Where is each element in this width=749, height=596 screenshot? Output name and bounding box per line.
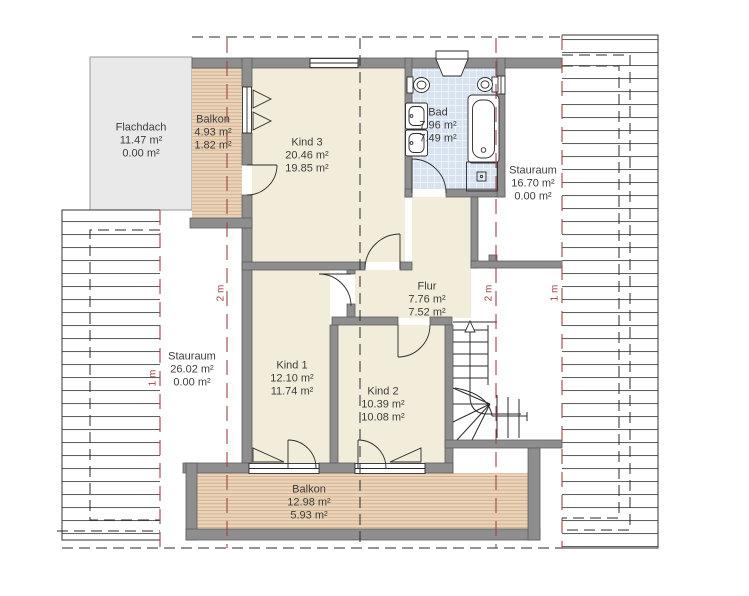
room-label-kind2: Kind 2 10.39 m² 10.08 m² [361,386,404,425]
room-area-floor: 10.39 m² [361,399,404,412]
wall-south-b [319,463,355,473]
room-area-floor: 7.96 m² [419,120,456,133]
room-area-floor: 11.47 m² [116,135,167,148]
room-label-balkon-top: Balkon 4.93 m² 1.82 m² [194,114,231,153]
left-roof-hatch [62,210,160,540]
room-area-living: 19.85 m² [285,163,328,176]
wall-stair-south [445,440,562,448]
room-name: Balkon [287,484,330,497]
room-area-floor: 7.76 m² [408,294,445,307]
bidet [407,77,430,93]
wall-kind3-south-a [242,262,365,270]
room-name: Stauraum [509,165,557,178]
room-area-living: 10.08 m² [361,412,404,425]
room-name: Flur [408,281,445,294]
balcony-parapet-south [186,529,540,540]
balcony-parapet-west [186,463,197,540]
room-label-bad: Bad 7.96 m² 7.49 m² [419,107,456,146]
room-name: Balkon [194,114,231,127]
room-name: Stauraum [168,351,216,364]
room-area-living: 7.49 m² [419,133,456,146]
room-area-living: 11.74 m² [270,386,313,399]
height-marker-2m-right: 2 m [484,285,495,302]
room-area-floor: 26.02 m² [168,364,216,377]
room-label-balkon-bottom: Balkon 12.98 m² 5.93 m² [287,484,330,523]
height-marker-1m-right: 1 m [550,285,561,302]
floor-plan: Flachdach 11.47 m² 0.00 m² Balkon 4.93 m… [0,0,749,596]
room-area-floor: 20.46 m² [285,150,328,163]
room-label-flur: Flur 7.76 m² 7.52 m² [408,281,445,320]
balcony-parapet-east [528,448,540,540]
toilet [478,77,499,92]
room-name: Bad [419,107,456,120]
wall-flur-east [471,197,478,268]
floor-plan-svg [0,0,749,596]
room-label-kind3: Kind 3 20.46 m² 19.85 m² [285,137,328,176]
room-area-living: 1.82 m² [194,140,231,153]
room-name: Kind 3 [285,137,328,150]
wall-kind2-north-a [332,317,398,325]
room-label-stauraum-left: Stauraum 26.02 m² 0.00 m² [168,351,216,390]
room-label-stauraum-right: Stauraum 16.70 m² 0.00 m² [509,165,557,204]
height-marker-1m-left: 1 m [148,370,159,387]
balcony-bottom-floor [197,473,529,529]
room-label-kind1: Kind 1 12.10 m² 11.74 m² [270,360,313,399]
wall-balcony-top-south [190,218,252,228]
room-area-floor: 4.93 m² [194,127,231,140]
wall-west-b [242,133,252,165]
room-label-flachdach: Flachdach 11.47 m² 0.00 m² [116,122,167,161]
wall-kind2-east [445,325,453,473]
room-name: Kind 1 [270,360,313,373]
room-area-living: 5.93 m² [287,510,330,523]
wall-kind1-kind2 [330,325,338,463]
wall-west-c [242,195,252,463]
room-area-living: 7.52 m² [408,307,445,320]
room-name: Kind 2 [361,386,404,399]
room-area-floor: 12.98 m² [287,497,330,510]
wall-west-a [242,58,252,87]
height-marker-2m-left: 2 m [216,285,227,302]
wall-south-c [425,463,453,473]
wall-bath-east-a [497,58,505,76]
wall-bath-south-a [405,189,412,197]
wall-kind1-east-a [347,270,355,274]
room-area-living: 0.00 m² [116,148,167,161]
room-area-floor: 16.70 m² [509,178,557,191]
room-area-living: 0.00 m² [509,191,557,204]
wall-stauraum-right-south [471,261,562,268]
right-roof-hatch [562,35,658,548]
room-area-living: 0.00 m² [168,377,216,390]
wall-kind3-south-b [400,262,412,270]
room-name: Flachdach [116,122,167,135]
room-area-floor: 12.10 m² [270,373,313,386]
